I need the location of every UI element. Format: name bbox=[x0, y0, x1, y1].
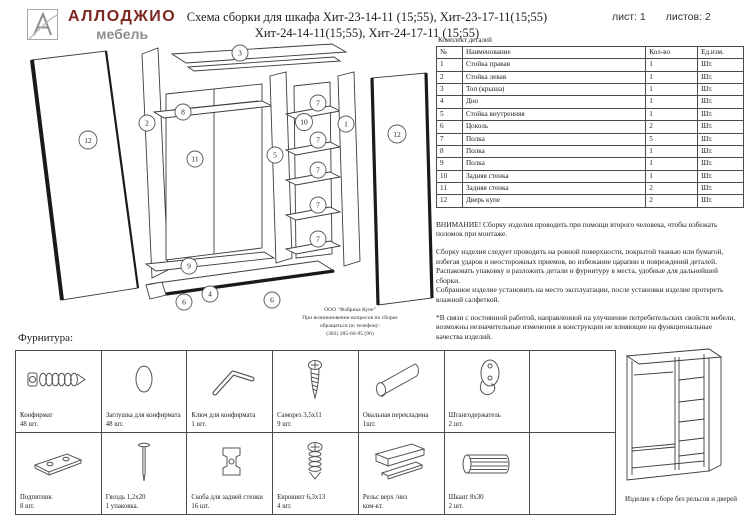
sheets-total: листов: 2 bbox=[666, 11, 711, 23]
hardware-cell-oval-rail: Овальная перекладина1шт. bbox=[358, 350, 444, 432]
callout-shelf-9: 9 bbox=[181, 258, 197, 274]
hardware-heading: Фурнитура: bbox=[18, 332, 73, 344]
part-name: Дно bbox=[462, 96, 645, 108]
hardware-name: Ключ для конфирмата bbox=[191, 411, 255, 420]
part-unit: Шт. bbox=[698, 108, 744, 120]
hardware-qty: 48 шт. bbox=[20, 421, 38, 428]
part-qty: 1 bbox=[646, 84, 698, 96]
part-unit: Шт. bbox=[698, 182, 744, 194]
factory-note-line3: обращаться по телефону: bbox=[268, 322, 432, 330]
svg-text:12: 12 bbox=[84, 136, 92, 145]
part-name: Топ (крыша) bbox=[462, 84, 645, 96]
hardware-qty: 1шт. bbox=[363, 421, 376, 428]
callout-inner-upright: 5 bbox=[267, 147, 283, 163]
part-name: Стойка правая bbox=[462, 59, 645, 71]
callout-top-panel: 3 bbox=[232, 45, 248, 61]
parts-table-caption: Комплект деталей bbox=[438, 36, 744, 44]
rod-holder-icon bbox=[448, 353, 527, 405]
cap-icon bbox=[105, 353, 184, 405]
table-row: 12Дверь купе2Шт. bbox=[437, 195, 744, 207]
brand-name: АЛЛОДЖИО bbox=[68, 8, 176, 26]
brand-logo-icon bbox=[26, 8, 60, 42]
assembly-notes: ВНИМАНИЕ! Сборку изделия проводить при п… bbox=[436, 220, 740, 342]
svg-text:7: 7 bbox=[316, 166, 320, 175]
factory-phone: (383) 285-60-95 (96) bbox=[268, 330, 432, 338]
back-wall-bracket-icon bbox=[190, 435, 269, 487]
table-row: 6Цоколь2Шт. bbox=[437, 121, 744, 133]
svg-text:4: 4 bbox=[208, 290, 212, 299]
part-number: 12 bbox=[437, 195, 463, 207]
part-unit: Шт. bbox=[698, 133, 744, 145]
assembled-caption: Изделие в сборе без рельсов и дверей bbox=[616, 495, 746, 503]
part-qty: 2 bbox=[646, 182, 698, 194]
hardware-name: Рельс верх /низ bbox=[363, 493, 407, 502]
svg-text:1: 1 bbox=[344, 120, 348, 129]
hardware-cell-empty-bottom bbox=[529, 432, 615, 514]
note-install: Собранное изделие установить на место эк… bbox=[436, 285, 740, 304]
table-row: 1Стойка правая1Шт. bbox=[437, 59, 744, 71]
hardware-cell-confirmat: Конфирмат48 шт. bbox=[15, 350, 101, 432]
assembled-view: Изделие в сборе без рельсов и дверей bbox=[616, 344, 746, 503]
svg-text:7: 7 bbox=[316, 99, 320, 108]
part-qty: 5 bbox=[646, 133, 698, 145]
hardware-qty: 48 шт. bbox=[106, 421, 124, 428]
part-name: Дверь купе bbox=[462, 195, 645, 207]
hardware-cell-cap: Заглушка для конфирмата48 шт. bbox=[101, 350, 187, 432]
callout-shelf-7c: 7 bbox=[310, 162, 326, 178]
hardware-name: Гвоздь 1,2х20 bbox=[106, 493, 146, 502]
screw-icon bbox=[276, 353, 355, 405]
callout-shelf-7e: 7 bbox=[310, 231, 326, 247]
note-disclaimer: *В связи с постоянной работой, направлен… bbox=[436, 313, 740, 342]
hardware-qty: 8 шт. bbox=[20, 503, 35, 510]
table-row: 5Стойка внутренняя1Шт. bbox=[437, 108, 744, 120]
warning-text: ВНИМАНИЕ! Сборку изделия проводить при п… bbox=[436, 220, 740, 239]
part-number: 2 bbox=[437, 71, 463, 83]
brand-subtitle: мебель bbox=[96, 26, 148, 42]
hardware-cell-foot-pad: Подпятник8 шт. bbox=[15, 432, 101, 514]
hardware-name: Шкант 8х30 bbox=[449, 493, 484, 502]
part-number: 5 bbox=[437, 108, 463, 120]
callout-door-left: 12 bbox=[79, 131, 97, 149]
part-qty: 2 bbox=[646, 195, 698, 207]
hardware-qty: 4 шт. bbox=[277, 503, 292, 510]
part-qty: 1 bbox=[646, 59, 698, 71]
part-name: Стойка внутренняя bbox=[462, 108, 645, 120]
part-qty: 1 bbox=[646, 170, 698, 182]
part-number: 7 bbox=[437, 133, 463, 145]
hardware-qty: 2 шт. bbox=[449, 421, 464, 428]
svg-text:2: 2 bbox=[145, 119, 149, 128]
svg-text:10: 10 bbox=[300, 118, 308, 127]
table-row: 9Полка1Шт. bbox=[437, 158, 744, 170]
hardware-name: Саморез 3,5х11 bbox=[277, 411, 322, 420]
column-header-name: Наименование bbox=[462, 47, 645, 59]
table-row: 7Полка5Шт. bbox=[437, 133, 744, 145]
note-unpack: Распаковать упаковку и разложить детали … bbox=[436, 266, 740, 285]
part-number: 1 bbox=[437, 59, 463, 71]
callout-door-right: 12 bbox=[388, 125, 406, 143]
hardware-name: Заглушка для конфирмата bbox=[106, 411, 181, 420]
part-unit: Шт. bbox=[698, 71, 744, 83]
svg-text:5: 5 bbox=[273, 151, 277, 160]
sheet-info: лист: 1 листов: 2 bbox=[612, 11, 742, 23]
hardware-cell-rod-holder: Штангодержатель2 шт. bbox=[444, 350, 530, 432]
hardware-cell-euro-screw: Евровинт 6,3х134 шт. bbox=[272, 432, 358, 514]
callout-back-wall-10: 10 bbox=[296, 114, 313, 131]
nail-icon bbox=[105, 435, 184, 487]
part-qty: 1 bbox=[646, 158, 698, 170]
part-number: 3 bbox=[437, 84, 463, 96]
assembled-wardrobe-drawing bbox=[617, 344, 745, 488]
hardware-cell-hex-key: Ключ для конфирмата1 шт. bbox=[186, 350, 272, 432]
confirmat-screw-icon bbox=[19, 353, 98, 405]
callout-bottom-panel: 4 bbox=[202, 286, 218, 302]
part-name: Задняя стенка bbox=[462, 182, 645, 194]
part-qty: 1 bbox=[646, 71, 698, 83]
svg-text:6: 6 bbox=[182, 298, 186, 307]
table-row: 10Задняя стенка1Шт. bbox=[437, 170, 744, 182]
part-number: 6 bbox=[437, 121, 463, 133]
svg-text:3: 3 bbox=[238, 49, 242, 58]
callout-shelf-7d: 7 bbox=[310, 197, 326, 213]
callout-back-wall-11: 11 bbox=[187, 151, 203, 167]
svg-text:8: 8 bbox=[181, 108, 185, 117]
factory-contact-note: ООО "Фабрика Купе" При возникновении воп… bbox=[268, 306, 432, 338]
hex-key-icon bbox=[190, 353, 269, 405]
part-unit: Шт. bbox=[698, 170, 744, 182]
callout-left-upright: 2 bbox=[139, 115, 155, 131]
part-number: 10 bbox=[437, 170, 463, 182]
foot-pad-icon bbox=[19, 435, 98, 487]
hardware-qty: 2 шт. bbox=[449, 503, 464, 510]
callout-shelf-7b: 7 bbox=[310, 132, 326, 148]
hardware-name: Подпятник bbox=[20, 493, 52, 502]
hardware-cell-nail: Гвоздь 1,2х201 упаковка. bbox=[101, 432, 187, 514]
part-name: Полка bbox=[462, 158, 645, 170]
svg-text:12: 12 bbox=[393, 130, 401, 139]
part-number: 9 bbox=[437, 158, 463, 170]
part-unit: Шт. bbox=[698, 96, 744, 108]
euro-screw-icon bbox=[276, 435, 355, 487]
callout-shelf-8: 8 bbox=[175, 104, 191, 120]
table-row: 3Топ (крыша)1Шт. bbox=[437, 84, 744, 96]
svg-text:11: 11 bbox=[191, 155, 198, 164]
exploded-assembly-diagram: 3 12 2 8 11 5 10 7 7 7 7 7 1 12 9 4 bbox=[0, 42, 434, 340]
part-unit: Шт. bbox=[698, 195, 744, 207]
hardware-name: Скоба для задней стенки bbox=[191, 493, 262, 502]
sheet-number: лист: 1 bbox=[612, 11, 646, 23]
hardware-qty: 9 шт. bbox=[277, 421, 292, 428]
table-row: 11Задняя стенка2Шт. bbox=[437, 182, 744, 194]
callout-plinth-a: 6 bbox=[176, 294, 192, 310]
part-qty: 1 bbox=[646, 145, 698, 157]
svg-text:9: 9 bbox=[187, 262, 191, 271]
hardware-qty: 16 шт. bbox=[191, 503, 209, 510]
part-unit: Шт. bbox=[698, 59, 744, 71]
oval-rail-icon bbox=[362, 353, 441, 405]
factory-name: ООО "Фабрика Купе" bbox=[268, 306, 432, 314]
rail-icon bbox=[362, 435, 441, 487]
column-header-number: № bbox=[437, 47, 463, 59]
callout-shelf-7a: 7 bbox=[310, 95, 326, 111]
page-title-line1: Схема сборки для шкафа Хит-23-14-11 (15;… bbox=[183, 9, 551, 25]
part-number: 11 bbox=[437, 182, 463, 194]
hardware-cell-bracket: Скоба для задней стенки16 шт. bbox=[186, 432, 272, 514]
hardware-cell-screw: Саморез 3,5х119 шт. bbox=[272, 350, 358, 432]
part-name: Задняя стенка bbox=[462, 170, 645, 182]
note-surface: Сборку изделия следует проводить на ровн… bbox=[436, 247, 740, 266]
logo: АЛЛОДЖИО мебель bbox=[26, 8, 176, 42]
part-number: 4 bbox=[437, 96, 463, 108]
svg-text:7: 7 bbox=[316, 136, 320, 145]
part-unit: Шт. bbox=[698, 121, 744, 133]
part-name: Стойка левая bbox=[462, 71, 645, 83]
svg-text:7: 7 bbox=[316, 201, 320, 210]
column-header-qty: Кол-во bbox=[646, 47, 698, 59]
part-name: Цоколь bbox=[462, 121, 645, 133]
hardware-cell-rail: Рельс верх /низком-кт. bbox=[358, 432, 444, 514]
hardware-qty: ком-кт. bbox=[363, 503, 383, 510]
part-unit: Шт. bbox=[698, 145, 744, 157]
table-row: 4Дно1Шт. bbox=[437, 96, 744, 108]
table-row: 2Стойка левая1Шт. bbox=[437, 71, 744, 83]
part-name: Полка bbox=[462, 133, 645, 145]
column-header-unit: Ед.изм. bbox=[698, 47, 744, 59]
right-column: Комплект деталей № Наименование Кол-во Е… bbox=[436, 36, 744, 342]
hardware-name: Овальная перекладина bbox=[363, 411, 429, 420]
hardware-name: Штангодержатель bbox=[449, 411, 501, 420]
hardware-qty: 1 упаковка. bbox=[106, 503, 139, 510]
hardware-cell-dowel: Шкант 8х302 шт. bbox=[444, 432, 530, 514]
part-qty: 2 bbox=[646, 121, 698, 133]
parts-table: № Наименование Кол-во Ед.изм. 1Стойка пр… bbox=[436, 46, 744, 208]
hardware-table: Конфирмат48 шт. Заглушка для конфирмата4… bbox=[15, 350, 616, 515]
part-qty: 1 bbox=[646, 108, 698, 120]
callout-right-upright: 1 bbox=[338, 116, 354, 132]
part-unit: Шт. bbox=[698, 158, 744, 170]
svg-text:6: 6 bbox=[270, 296, 274, 305]
part-name: Полка bbox=[462, 145, 645, 157]
dowel-icon bbox=[448, 435, 527, 487]
table-row: 8Полка1Шт. bbox=[437, 145, 744, 157]
part-unit: Шт. bbox=[698, 84, 744, 96]
hardware-name: Конфирмат bbox=[20, 411, 53, 420]
assembly-instruction-page: АЛЛОДЖИО мебель Схема сборки для шкафа Х… bbox=[0, 0, 748, 527]
hardware-qty: 1 шт. bbox=[191, 421, 206, 428]
factory-note-line2: При возникновении вопросов по сборке bbox=[268, 314, 432, 322]
part-qty: 1 bbox=[646, 96, 698, 108]
hardware-cell-empty-top bbox=[529, 350, 615, 432]
parts-table-header-row: № Наименование Кол-во Ед.изм. bbox=[437, 47, 744, 59]
hardware-name: Евровинт 6,3х13 bbox=[277, 493, 325, 502]
svg-text:7: 7 bbox=[316, 235, 320, 244]
part-number: 8 bbox=[437, 145, 463, 157]
